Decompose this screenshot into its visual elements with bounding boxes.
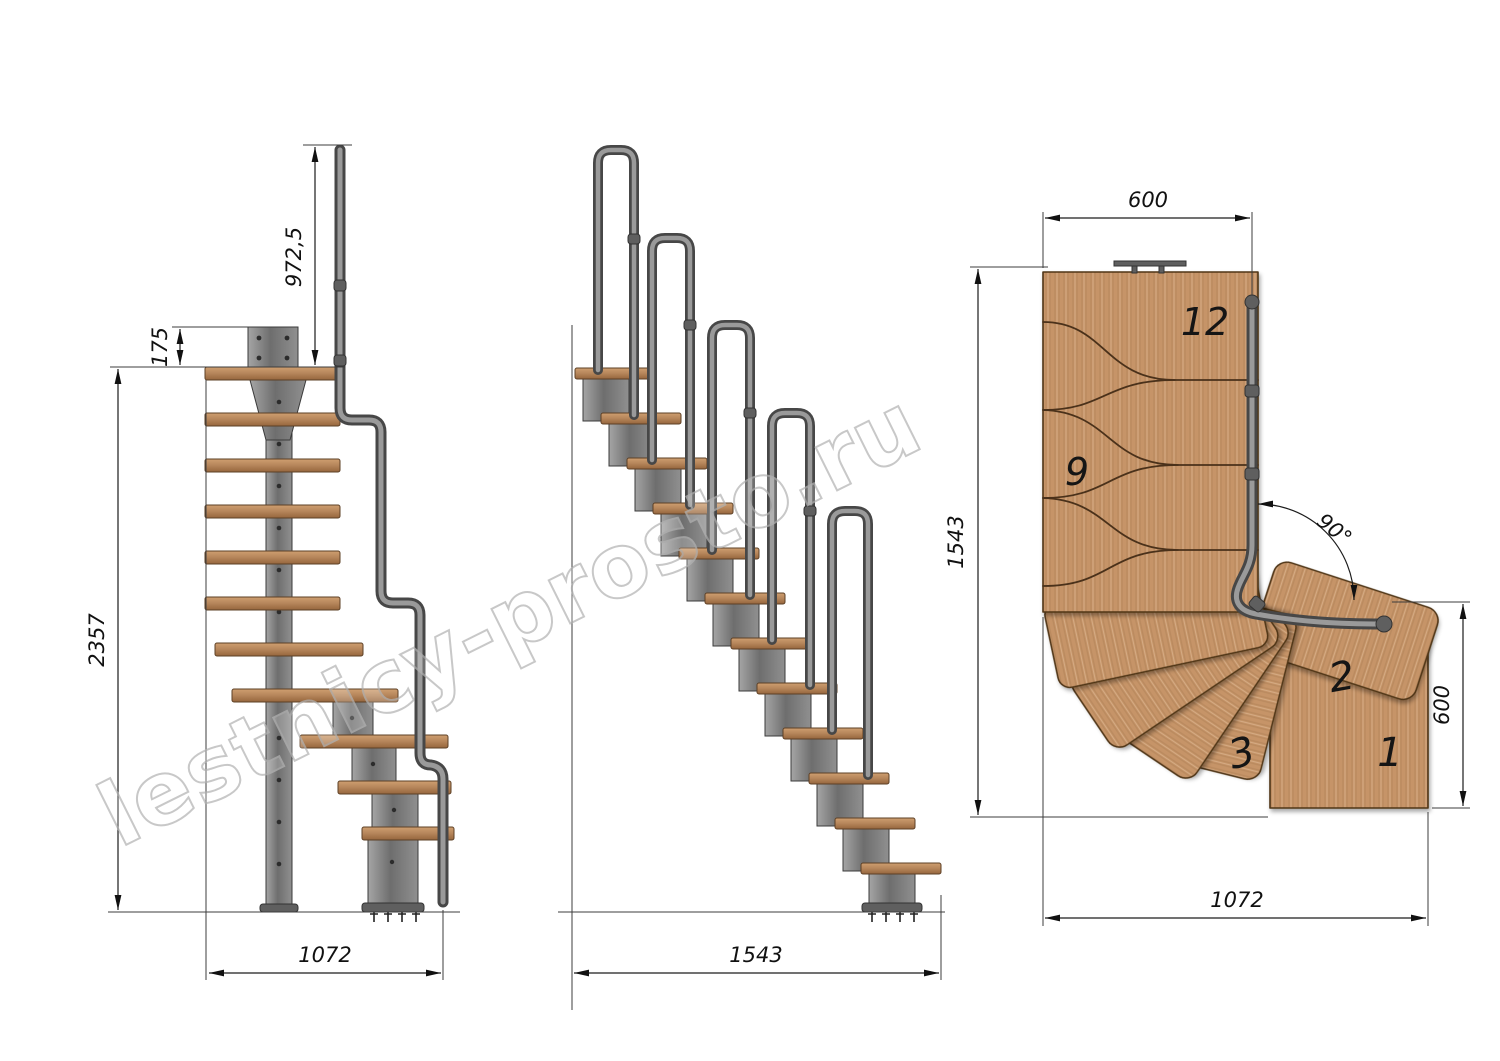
step-label-12: 12 <box>1181 300 1229 344</box>
step <box>205 413 340 426</box>
step <box>809 773 889 784</box>
step <box>575 368 655 379</box>
dim-top-width: 600 <box>1128 188 1168 212</box>
step-label-1: 1 <box>1377 730 1402 776</box>
step <box>757 683 837 694</box>
dim-front-width: 1543 <box>729 943 782 967</box>
step <box>205 459 340 472</box>
step <box>205 505 340 518</box>
plan-view: 12 9 2 3 1 600 1543 90° 600 1072 <box>944 188 1470 926</box>
step <box>835 818 915 829</box>
dim-total-height: 2357 <box>85 613 109 667</box>
dim-top-offset: 175 <box>148 327 172 367</box>
dim-plan-length: 1543 <box>944 515 968 568</box>
step <box>205 551 340 564</box>
anchor-bolts <box>370 912 420 922</box>
step <box>861 863 941 874</box>
dim-step-width: 600 <box>1430 685 1454 725</box>
step <box>783 728 863 739</box>
dim-angle: 90° <box>1312 509 1356 551</box>
dim-handrail-height: 972,5 <box>282 227 306 287</box>
dim-side-length: 1072 <box>298 943 351 967</box>
wall-mount-plate <box>248 327 298 368</box>
step <box>601 413 681 424</box>
step <box>205 597 340 610</box>
anchor-bolts <box>868 912 918 922</box>
staircase-technical-drawing: 972,5 175 2357 1072 <box>0 0 1500 1061</box>
step <box>205 367 340 380</box>
drawing-canvas: 972,5 175 2357 1072 <box>0 0 1500 1061</box>
dim-bottom-length: 1072 <box>1210 888 1263 912</box>
step <box>338 781 451 794</box>
step-label-9: 9 <box>1065 450 1089 494</box>
